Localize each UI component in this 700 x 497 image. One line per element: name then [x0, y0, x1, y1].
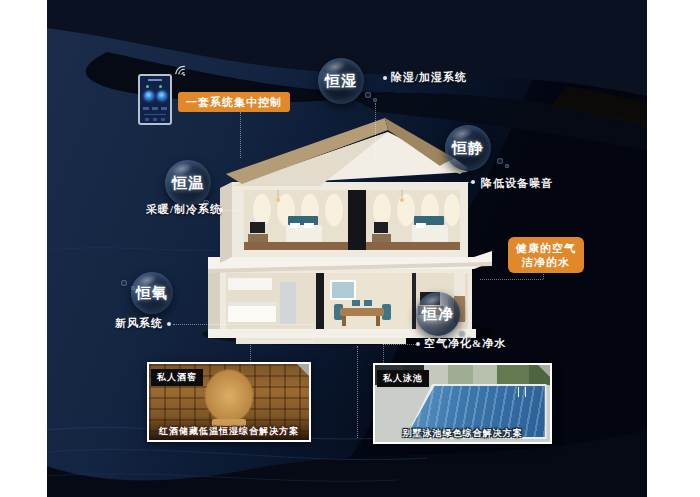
callout-healthy-air: 健康的空气 洁净的水: [508, 237, 584, 273]
phone-readout: [152, 107, 158, 110]
connector-freshair-2: [313, 324, 314, 341]
mini-bubble: [365, 92, 371, 98]
annotation-dot: [219, 208, 223, 212]
connector-house-to-noise: [425, 182, 471, 183]
mini-bubble: [121, 280, 127, 286]
pool-ladder: [518, 387, 526, 397]
photo-caption: 红酒储藏低温恒湿综合解决方案: [149, 425, 309, 438]
connector-freshair-3: [250, 341, 313, 342]
annotation-purification: 空气净化&净水: [424, 336, 506, 351]
photo-pool: 私人泳池 别墅泳池绿色综合解决方案: [373, 363, 552, 444]
corner-fold-icon: [297, 364, 309, 376]
bubble-hengjing: 恒静: [445, 125, 491, 171]
phone-readout: [161, 107, 167, 110]
connector-house-to-photos: [357, 346, 358, 438]
phone-key: [145, 118, 149, 121]
annotation-dot: [471, 180, 475, 184]
annotation-heating-cooling: 采暖/制冷系统: [146, 202, 222, 217]
phone-status-led: [146, 85, 149, 88]
connector-heating-to-house: [225, 210, 239, 211]
photo-wine-cellar: 私人酒窖 红酒储藏低温恒湿综合解决方案: [147, 362, 311, 442]
mini-bubble: [373, 98, 377, 102]
photo-caption: 别墅泳池绿色综合解决方案: [375, 427, 550, 440]
corner-fold-icon: [538, 365, 550, 377]
connector-control-to-house: [240, 112, 241, 158]
callout-healthy-air-line2: 洁净的水: [510, 255, 582, 269]
photo-tag: 私人酒窖: [151, 369, 203, 386]
annotation-noise: 降低设备噪音: [481, 176, 553, 191]
connector-purify-1: [383, 344, 416, 345]
mini-bubble: [505, 164, 509, 168]
bubble-hengyang: 恒氧: [131, 272, 173, 314]
phone-key: [161, 118, 165, 121]
mini-bubble: [131, 286, 135, 290]
callout-central-control: 一套系统集中控制: [178, 92, 290, 112]
smart-home-phone: [138, 74, 172, 125]
infographic-canvas: 一套系统集中控制 健康的空气 洁净的水 恒湿 恒静 恒温 恒氧 恒净 除湿/加湿…: [47, 0, 647, 497]
phone-readout: [143, 107, 149, 110]
annotation-dot: [383, 76, 387, 80]
annotation-fresh-air: 新风系统: [115, 316, 163, 331]
bubble-hengwen: 恒温: [165, 160, 211, 206]
connector-freshair-4: [250, 341, 251, 364]
annotation-dehumidify: 除湿/加湿系统: [391, 70, 467, 85]
phone-control-dial: [144, 91, 154, 101]
callout-healthy-air-line1: 健康的空气: [510, 241, 582, 255]
connector-purify-2: [383, 344, 384, 365]
annotation-dot: [416, 342, 420, 346]
connector-freshair-1: [173, 324, 313, 325]
bubble-hengjin: 恒净: [416, 292, 460, 336]
annotation-dot: [167, 322, 171, 326]
bubble-hengshi: 恒湿: [318, 58, 364, 104]
phone-screen-title: [148, 79, 162, 81]
photo-tag: 私人泳池: [377, 370, 429, 387]
phone-divider: [144, 114, 166, 115]
mini-bubble: [497, 158, 503, 164]
connector-hengshi-to-roof: [375, 103, 376, 161]
phone-status-led: [159, 85, 162, 88]
phone-key: [153, 118, 157, 121]
phone-control-dial: [157, 91, 167, 101]
connector-healthyair-2: [480, 279, 543, 280]
